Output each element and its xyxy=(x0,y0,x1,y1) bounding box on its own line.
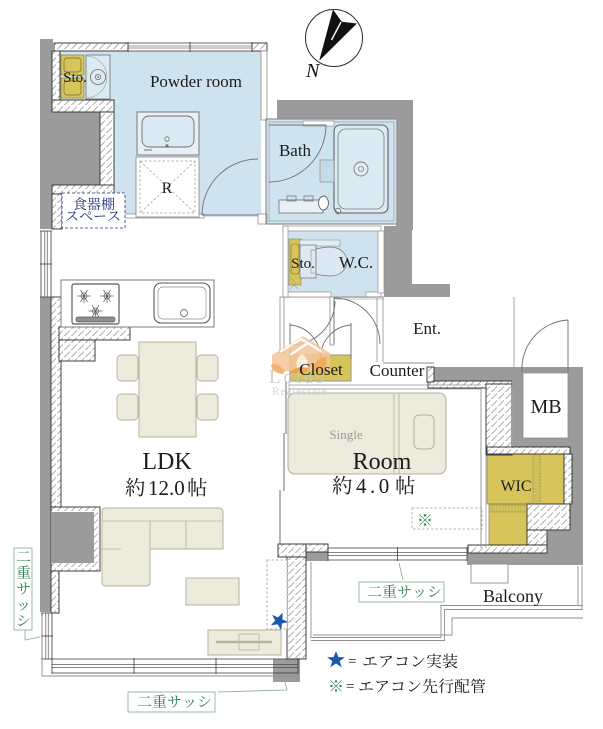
svg-text:R: R xyxy=(162,180,173,197)
svg-text:Single: Single xyxy=(329,427,362,442)
svg-text:Realestate: Realestate xyxy=(272,386,327,398)
svg-text:Room: Room xyxy=(353,449,412,475)
svg-text:WIC: WIC xyxy=(500,478,531,495)
svg-text:Powder room: Powder room xyxy=(150,72,242,91)
svg-text:LDK: LDK xyxy=(142,449,192,475)
svg-text:Ent.: Ent. xyxy=(413,319,441,338)
svg-text:12.0: 12.0 xyxy=(148,476,185,500)
svg-text:Balcony: Balcony xyxy=(483,586,543,606)
svg-text:4.0: 4.0 xyxy=(356,474,393,498)
svg-text:Sto.: Sto. xyxy=(291,256,315,272)
svg-text:W.C.: W.C. xyxy=(339,253,373,272)
svg-text:Closet: Closet xyxy=(299,360,343,379)
svg-text:Bath: Bath xyxy=(279,141,312,160)
svg-text:=: = xyxy=(348,654,356,670)
svg-text:Counter: Counter xyxy=(370,361,425,380)
svg-text:MB: MB xyxy=(530,396,561,418)
svg-text:N: N xyxy=(305,60,321,82)
svg-text:=: = xyxy=(346,679,354,695)
svg-text:Sto.: Sto. xyxy=(63,70,87,86)
